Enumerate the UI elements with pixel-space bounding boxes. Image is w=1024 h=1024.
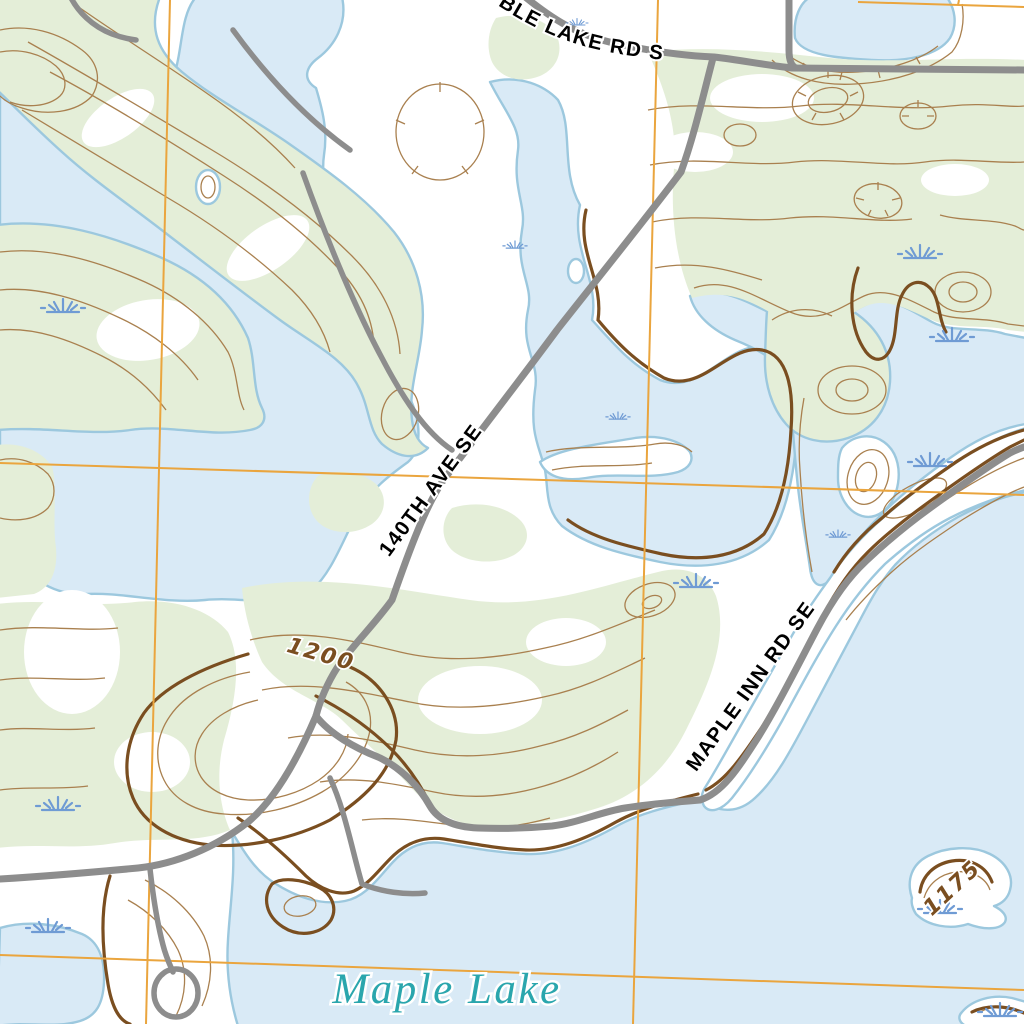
clearing	[921, 164, 989, 196]
clearing	[24, 590, 120, 714]
clearing	[710, 74, 814, 122]
clearing	[526, 618, 606, 666]
upper-lake-island	[196, 170, 220, 204]
bay-islet	[568, 259, 584, 283]
topo-map-canvas[interactable]: BLE LAKE RD S 140TH AVE SE MAPLE INN RD …	[0, 0, 1024, 1024]
mid-green-2	[443, 504, 527, 561]
road-culdesac-loop	[154, 969, 198, 1017]
lake-label-maple-lake: Maple Lake	[331, 966, 561, 1013]
west-pocket-green	[0, 444, 56, 598]
road-culdesac-stem	[150, 869, 173, 972]
clearing	[418, 666, 542, 734]
bottom-left-pond	[0, 924, 104, 1024]
index-contour-culdesac	[103, 876, 130, 1024]
topo-map-viewport[interactable]: BLE LAKE RD S 140TH AVE SE MAPLE INN RD …	[0, 0, 1024, 1024]
